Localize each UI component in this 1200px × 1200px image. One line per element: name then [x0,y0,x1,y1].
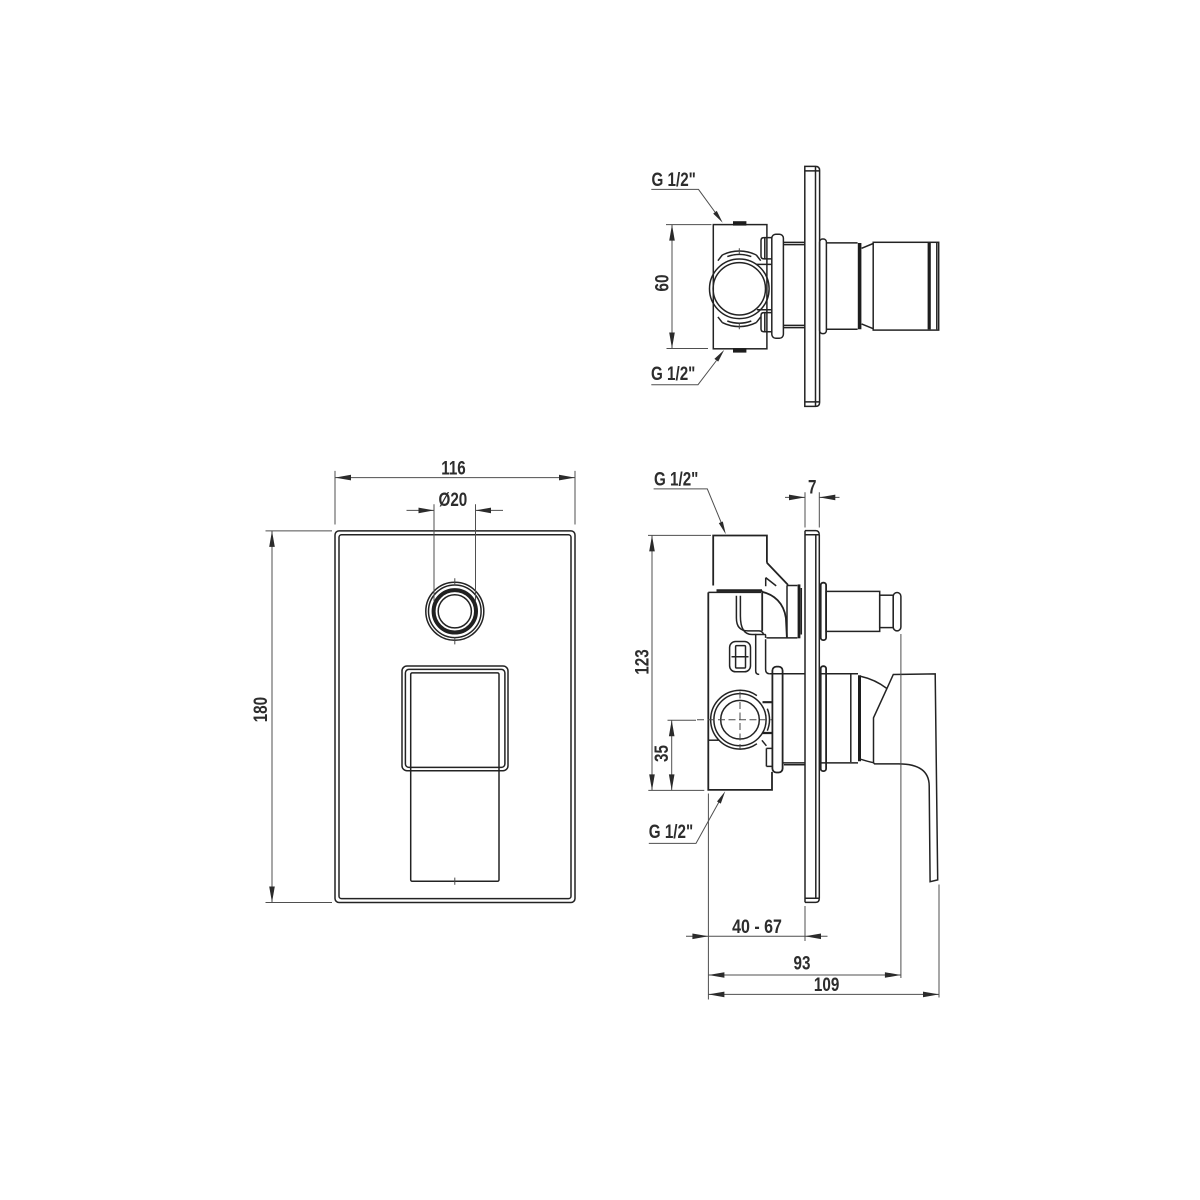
svg-text:180: 180 [249,697,271,722]
svg-text:Ø20: Ø20 [439,488,468,510]
svg-text:93: 93 [794,952,811,974]
svg-text:G 1/2": G 1/2" [652,168,696,190]
svg-text:116: 116 [441,456,466,478]
svg-text:35: 35 [650,745,672,762]
svg-text:123: 123 [631,649,653,675]
svg-text:7: 7 [808,475,816,497]
svg-text:G 1/2": G 1/2" [649,820,693,842]
svg-text:60: 60 [651,275,673,292]
svg-text:40 - 67: 40 - 67 [732,915,782,937]
svg-text:G 1/2": G 1/2" [651,362,695,384]
svg-text:109: 109 [814,973,840,995]
svg-text:G 1/2": G 1/2" [654,468,698,490]
